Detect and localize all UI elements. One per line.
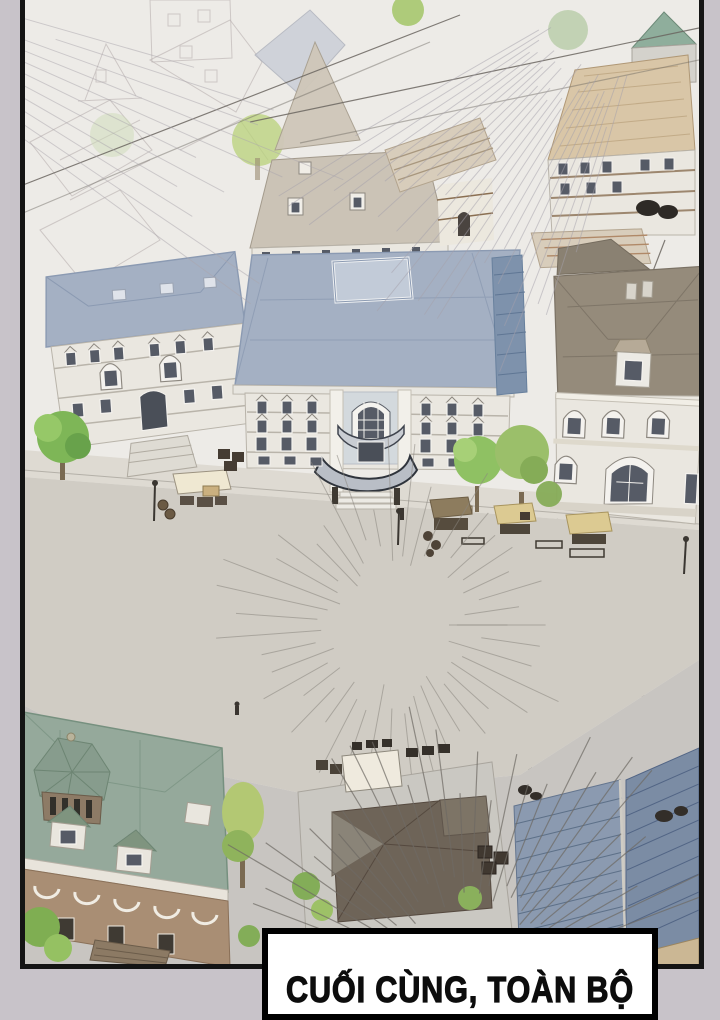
caption-box: CUỐI CÙNG, TOÀN BỘ (262, 928, 658, 1020)
alley-blue-roof (492, 255, 527, 395)
caption-text: CUỐI CÙNG, TOÀN BỘ (286, 972, 634, 1008)
town-square-illustration (0, 0, 720, 1000)
comic-page: CUỐI CÙNG, TOÀN BỘ (0, 0, 720, 1000)
